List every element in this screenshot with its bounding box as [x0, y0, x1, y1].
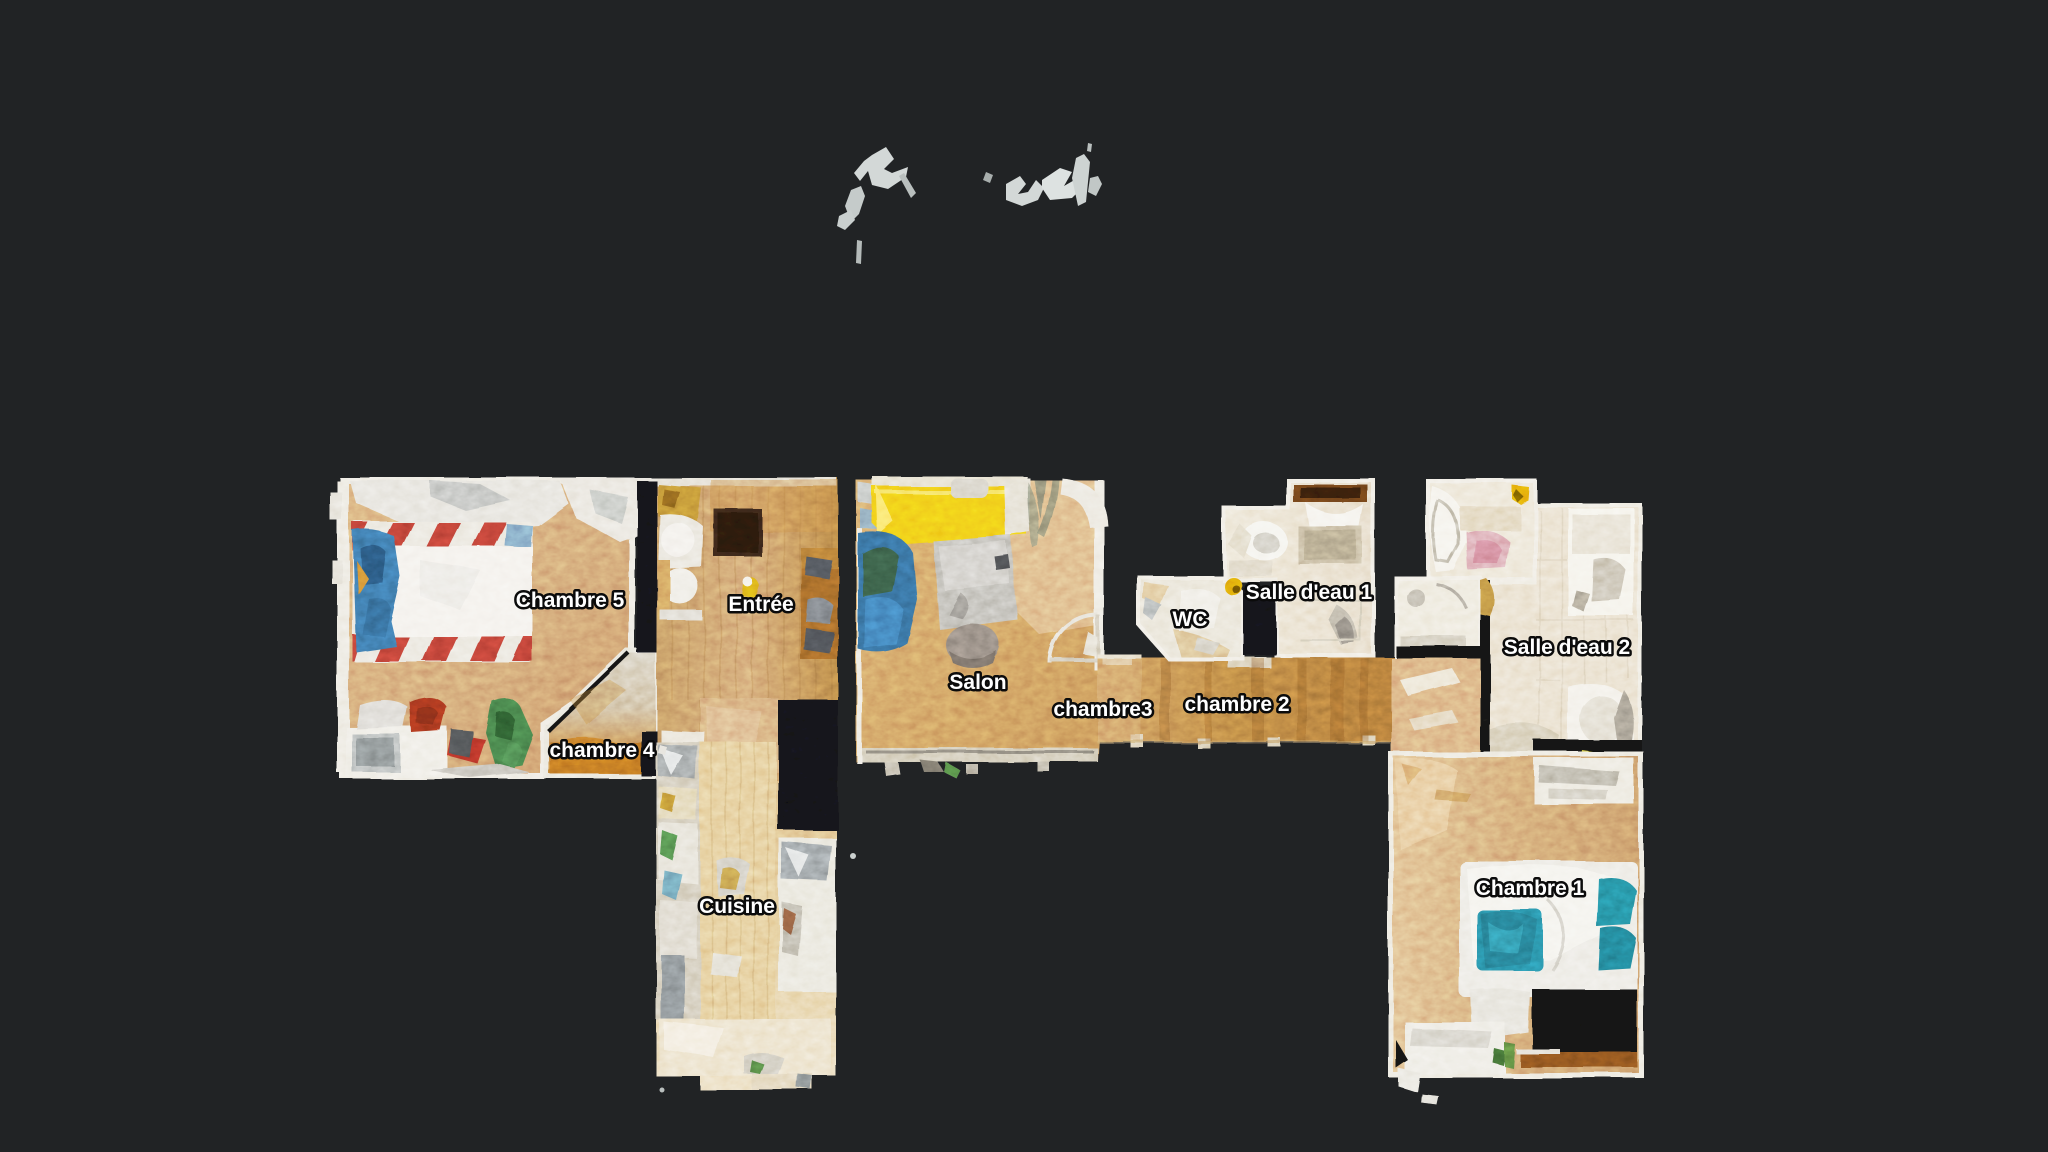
- svg-text:Salle d'eau 1: Salle d'eau 1: [1246, 581, 1373, 604]
- svg-text:Salle d'eau 2: Salle d'eau 2: [1504, 636, 1630, 659]
- svg-text:WC: WC: [1173, 608, 1208, 631]
- svg-text:chambre 4: chambre 4: [549, 739, 654, 762]
- svg-text:Salon: Salon: [949, 671, 1006, 694]
- svg-text:chambre 2: chambre 2: [1184, 693, 1289, 716]
- svg-text:Cuisine: Cuisine: [699, 895, 775, 918]
- svg-text:Chambre 5: Chambre 5: [516, 589, 625, 612]
- svg-text:chambre3: chambre3: [1053, 698, 1152, 721]
- svg-text:Chambre 1: Chambre 1: [1476, 877, 1585, 900]
- svg-text:Entrée: Entrée: [728, 593, 793, 616]
